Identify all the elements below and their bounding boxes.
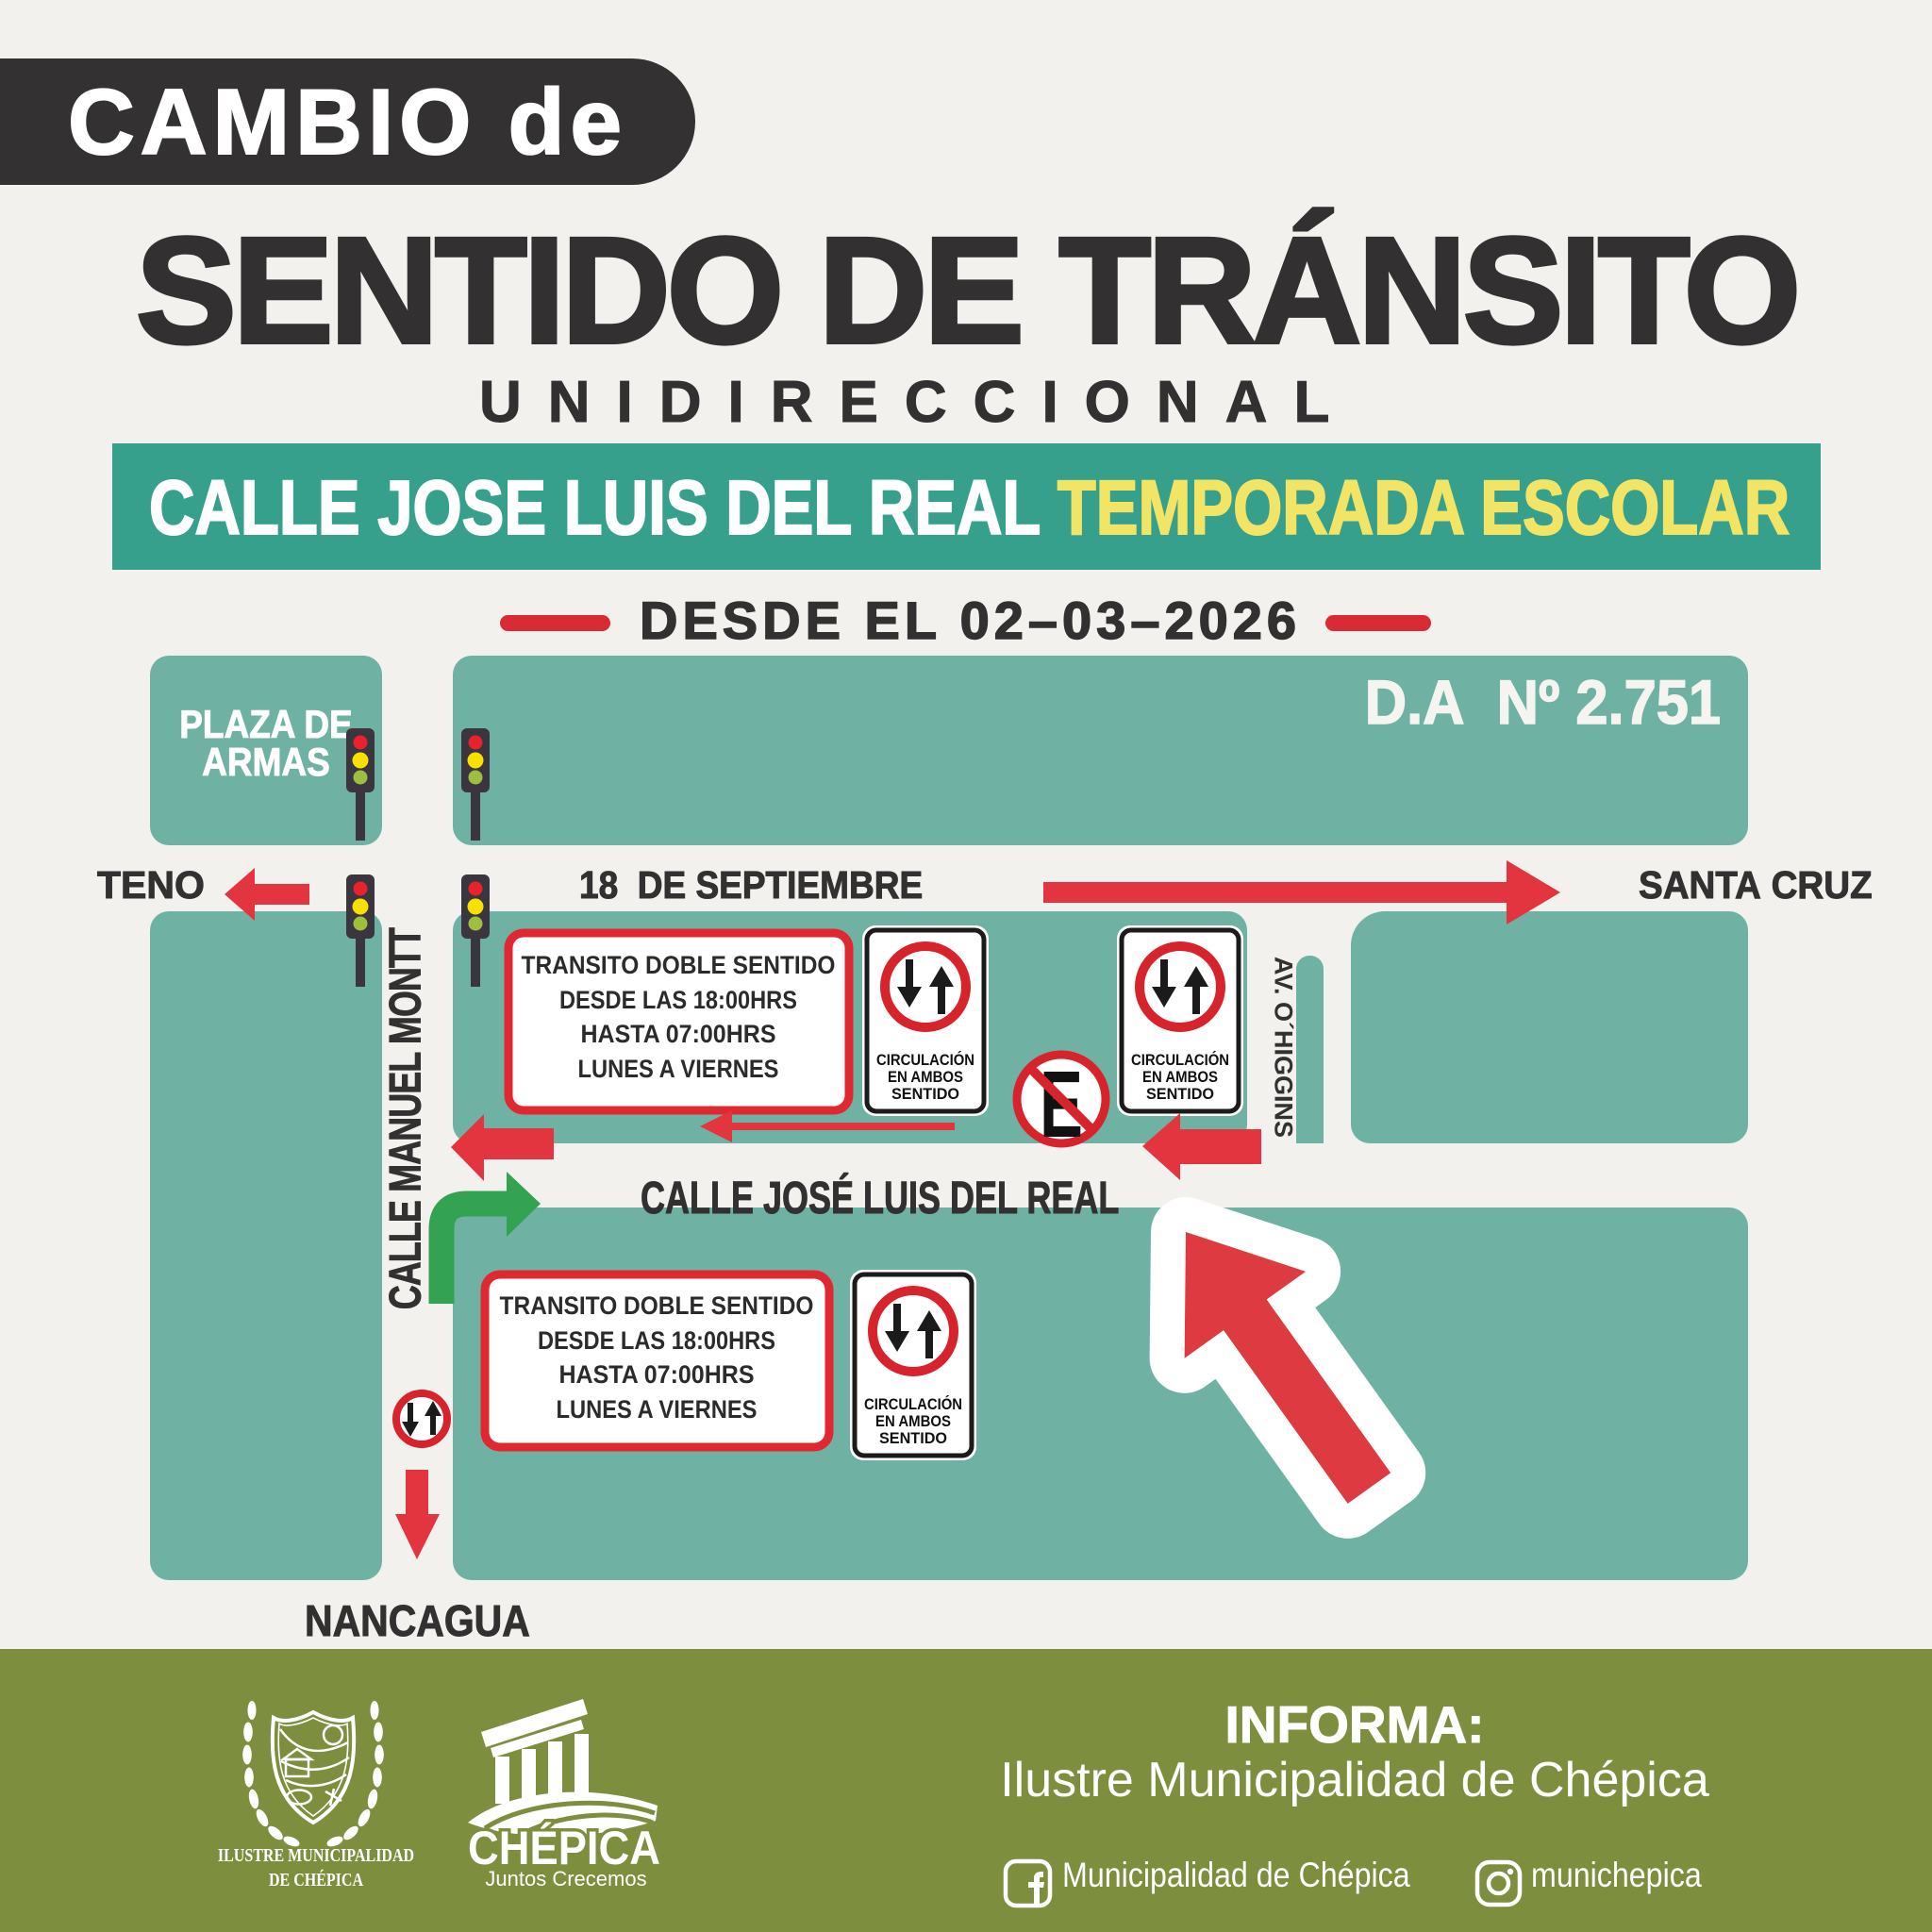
svg-text:DESDE LAS 18:00HRS: DESDE LAS 18:00HRS	[538, 1326, 775, 1355]
svg-text:SENTIDO: SENTIDO	[891, 1086, 959, 1103]
svg-text:HASTA 07:00HRS: HASTA 07:00HRS	[581, 1020, 776, 1048]
svg-text:EN AMBOS: EN AMBOS	[888, 1069, 963, 1086]
svg-text:CIRCULACIÓN: CIRCULACIÓN	[876, 1051, 974, 1069]
svg-text:LUNES A VIERNES: LUNES A VIERNES	[578, 1055, 779, 1083]
svg-text:HASTA 07:00HRS: HASTA 07:00HRS	[559, 1360, 755, 1389]
svg-text:TRANSITO DOBLE SENTIDO: TRANSITO DOBLE SENTIDO	[522, 951, 836, 979]
svg-text:LUNES A VIERNES: LUNES A VIERNES	[557, 1395, 758, 1424]
svg-text:DESDE LAS 18:00HRS: DESDE LAS 18:00HRS	[559, 986, 797, 1014]
svg-text:Juntos Crecemos: Juntos Crecemos	[485, 1867, 646, 1890]
svg-text:TRANSITO DOBLE SENTIDO: TRANSITO DOBLE SENTIDO	[500, 1291, 814, 1320]
